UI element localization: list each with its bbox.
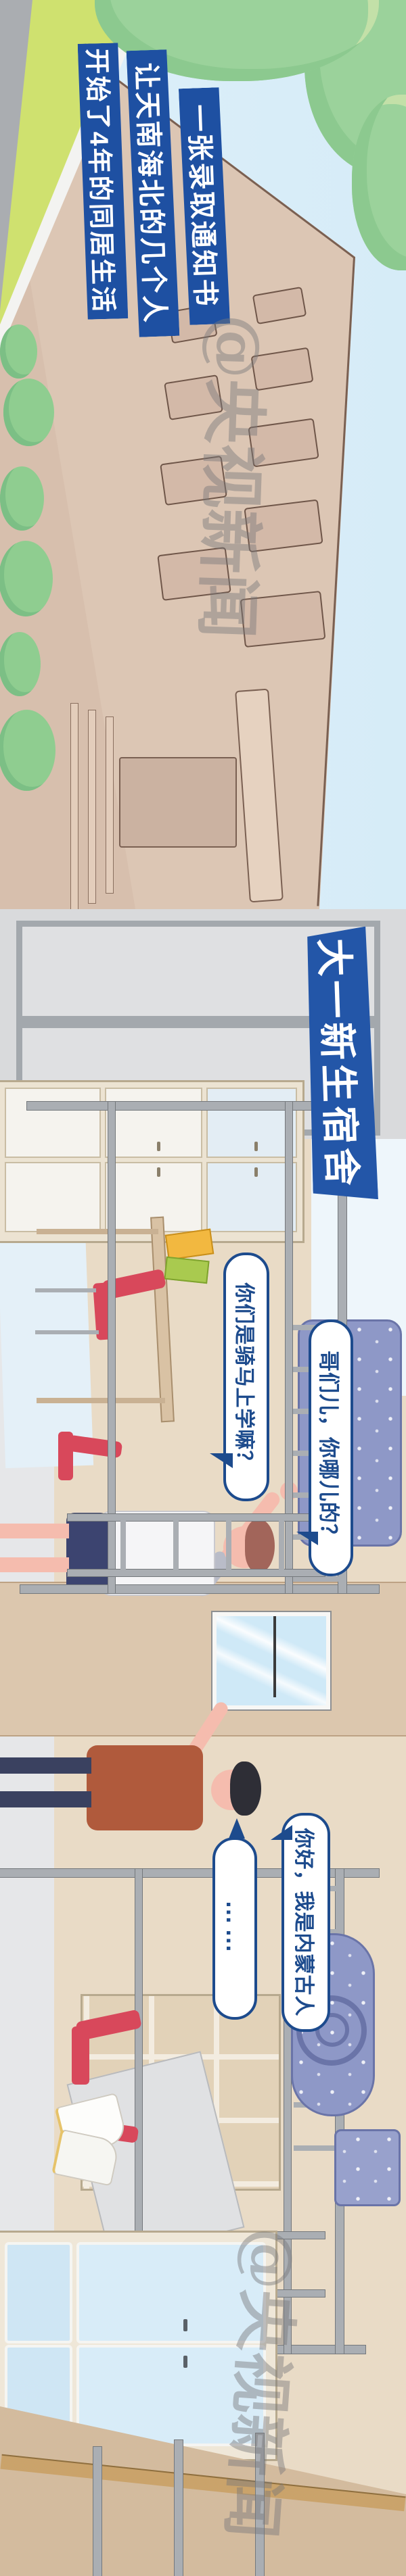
- speech-bubble-ride-horse-text: 你们是骑马上学嘛？: [231, 1283, 261, 1472]
- entrance-step: [88, 710, 96, 904]
- chair-seat: [58, 1432, 73, 1480]
- desk-leg: [37, 1398, 165, 1403]
- chair-leg-tube: [35, 1330, 99, 1334]
- bush: [0, 632, 41, 696]
- speech-bubble-ellipsis: ……: [212, 1837, 257, 2020]
- bunk1-ladder-rungs: [88, 1514, 284, 1576]
- wardrobe-handle: [157, 1142, 160, 1151]
- roommate-2-hair-black: [230, 1761, 261, 1816]
- speech-bubble-inner-mongolia-text: 你好，我是内蒙古人: [291, 1828, 321, 2017]
- speech-bubble-ellipsis-text: ……: [221, 1900, 249, 1957]
- wardrobe-handle: [183, 2356, 187, 2368]
- wardrobe-door: [206, 1162, 297, 1232]
- bush: [0, 324, 37, 379]
- bush: [3, 379, 54, 446]
- wardrobe-door: [105, 1088, 202, 1158]
- cctv-news-watermark: @央视新闻: [185, 313, 290, 641]
- entrance-step: [106, 716, 114, 894]
- comic-screenshot: 一张录取通知书 让天南海北的几个人 开始了4年的同居生活 @央视新闻: [0, 0, 406, 2576]
- book-green: [164, 1257, 209, 1284]
- wardrobe-handle: [183, 2319, 187, 2331]
- speech-bubble-ellipsis-tail: [229, 1818, 245, 1839]
- speech-bubble-where-from-text: 哥们儿，你哪儿的？: [316, 1351, 346, 1545]
- desk-leg: [37, 1229, 158, 1234]
- roommate-2-leg: [0, 1791, 91, 1807]
- folded-quilt: [334, 2129, 401, 2206]
- intro-banner-3-label: 开始了4年的同居生活: [81, 48, 125, 314]
- speech-bubble-inner-mongolia-tail: [271, 1825, 292, 1840]
- entrance-step: [70, 703, 78, 910]
- wardrobe-door: [5, 1088, 101, 1158]
- roommate-1-leg: [0, 1524, 69, 1538]
- bush: [0, 466, 44, 531]
- intro-banner-1-label: 一张录取通知书: [181, 104, 227, 309]
- wardrobe-handle: [254, 1167, 258, 1177]
- speech-bubble-ride-horse-tail: [210, 1453, 233, 1468]
- dorm-room-banner-label: 大一新生宿舍: [309, 938, 373, 1191]
- window-divider: [273, 1616, 276, 1697]
- comic-strip-rotated: 一张录取通知书 让天南海北的几个人 开始了4年的同居生活 @央视新闻: [0, 0, 406, 2576]
- wardrobe-end-drawer: [5, 2242, 72, 2343]
- roommate-1-leg: [0, 1557, 69, 1572]
- back-window: [212, 1612, 330, 1709]
- speech-bubble-where-from-tail: [296, 1532, 318, 1545]
- chair-seat: [72, 2026, 89, 2085]
- wardrobe-handle: [254, 1142, 258, 1151]
- roommate-2-torso: [87, 1745, 203, 1830]
- wardrobe-handle: [157, 1167, 160, 1177]
- entrance-doorway: [119, 757, 237, 848]
- end-bed-tube: [175, 2440, 183, 2576]
- wardrobe-door: [5, 1162, 101, 1232]
- end-bed-tube: [93, 2447, 101, 2576]
- dorm-room-banner: 大一新生宿舍: [304, 926, 378, 1201]
- bush: [0, 710, 55, 791]
- back-wall-column: [0, 1582, 406, 1736]
- speech-bubble-inner-mongolia: 你好，我是内蒙古人: [281, 1813, 330, 2032]
- bush: [0, 541, 53, 616]
- chair-leg-tube: [35, 1288, 96, 1292]
- roommate-2-leg: [0, 1757, 91, 1774]
- wardrobe-door: [206, 1088, 297, 1158]
